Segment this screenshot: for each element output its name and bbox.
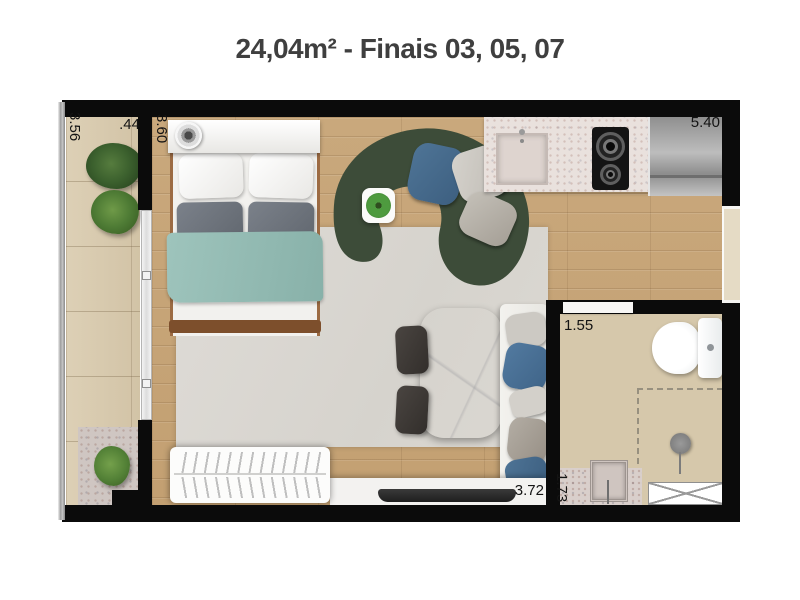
- dining-chair: [395, 385, 429, 435]
- dining-table: [420, 308, 502, 438]
- slatted-shelf: [170, 447, 330, 503]
- ventilation-shaft: [648, 482, 724, 505]
- dim-bathroom-width: 1.55: [564, 317, 593, 334]
- door-handle: [142, 379, 151, 388]
- wall-balcony-pier: [138, 420, 152, 505]
- dim-bathroom-counter: 1.73: [553, 473, 570, 502]
- dim-balcony-depth: .44: [104, 116, 140, 133]
- potted-plant: [86, 143, 142, 189]
- bathroom-faucet: [607, 480, 609, 504]
- entry-doorway: [722, 206, 740, 303]
- page-title: 24,04m² - Finais 03, 05, 07: [0, 33, 800, 65]
- burner-icon: [596, 132, 625, 161]
- speaker-icon: [175, 122, 202, 149]
- shower-partition: [637, 388, 723, 390]
- bathroom-sink: [590, 460, 628, 502]
- shelf-slats: [176, 477, 324, 498]
- faucet-icon: [519, 129, 525, 135]
- door-handle: [142, 271, 151, 280]
- burner-icon: [600, 164, 621, 185]
- dining-chair: [395, 325, 429, 375]
- wall-bottom: [62, 505, 740, 522]
- bathroom-doorway: [563, 302, 633, 313]
- potted-plant: [91, 190, 139, 234]
- dim-unit-width: 5.40: [670, 114, 720, 131]
- wall-balcony-pier: [138, 117, 152, 210]
- shelf-slats: [176, 452, 324, 473]
- toilet: [652, 322, 702, 374]
- shelf-divider: [174, 473, 326, 475]
- balcony-railing: [58, 102, 65, 520]
- dim-balcony-length: 3.56: [66, 112, 83, 141]
- bed: [170, 150, 320, 336]
- kitchen-sink: [496, 133, 548, 185]
- potted-plant: [94, 446, 130, 486]
- bed-pillow: [248, 153, 313, 199]
- shower-head-icon: [670, 433, 691, 454]
- wall-step: [112, 490, 140, 505]
- toilet-flush-button: [707, 344, 714, 351]
- floor-plan: 3.56 .44 3.60 5.40 1.55 1.73 3.72: [58, 98, 742, 524]
- dim-living-width: 3.72: [496, 482, 544, 499]
- balcony-sliding-door: [141, 210, 152, 420]
- bed-pillow: [178, 153, 243, 199]
- bed-foot-rail: [169, 320, 321, 333]
- shower-stem: [679, 452, 681, 474]
- bed-blanket: [167, 231, 324, 303]
- potted-plant-small: [366, 193, 391, 218]
- dim-bedroom-length: 3.60: [153, 114, 170, 143]
